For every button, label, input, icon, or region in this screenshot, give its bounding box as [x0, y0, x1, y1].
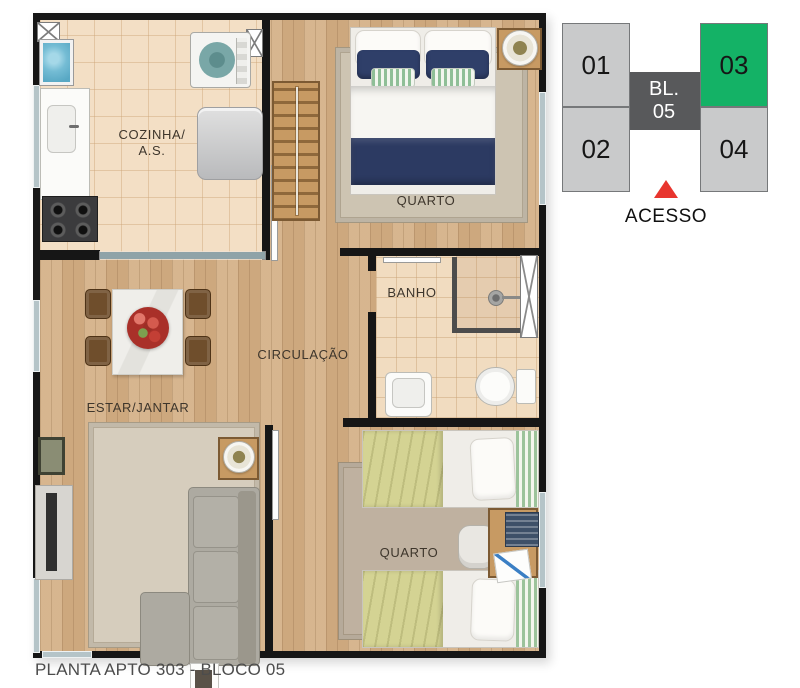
wall-bathroom-left-upper [368, 253, 376, 271]
room-label-circulation: CIRCULAÇÃO [257, 347, 348, 363]
bed-head-cover [516, 431, 538, 507]
unit-04-box: 04 [700, 107, 768, 192]
wardrobe [272, 81, 320, 221]
window-bedroom-top-right [539, 92, 546, 205]
unit-01-box: 01 [562, 23, 630, 107]
bathroom-window [520, 255, 538, 338]
room-label-bathroom: BANHO [387, 285, 436, 301]
window-living-left-lower [33, 578, 40, 653]
laptop [505, 512, 539, 547]
apartment-floorplan: COZINHA/ A.S. QUARTO BANHO CIRCULAÇÃO ES… [33, 13, 546, 658]
tv [46, 493, 57, 571]
dining-chair [85, 289, 111, 319]
bed-pillow [470, 578, 516, 641]
room-label-living: ESTAR/JANTAR [87, 400, 190, 416]
shower-arm [502, 296, 520, 299]
block-label-line2: 05 [653, 101, 675, 124]
kitchen-sink-basin [47, 105, 76, 153]
kitchen-faucet [69, 125, 79, 128]
flower-centerpiece [127, 307, 169, 349]
bed-head-cover [516, 571, 538, 647]
access-label: ACESSO [606, 206, 726, 228]
single-bed [362, 570, 539, 648]
sofa-chaise [140, 592, 190, 666]
table-lamp [223, 441, 255, 473]
room-label-bedroom-bottom: QUARTO [380, 545, 439, 561]
washing-machine [190, 32, 251, 88]
toilet-cistern [516, 369, 536, 404]
room-label-kitchen: COZINHA/ A.S. [119, 127, 186, 160]
laundry-tub [40, 40, 73, 85]
door-bedroom-bottom [272, 430, 279, 520]
bed-blanket [363, 431, 443, 507]
wall-kitchen-right [262, 20, 270, 260]
dining-chair [185, 289, 211, 319]
sofa-cushion [193, 606, 239, 660]
single-bed [362, 430, 539, 508]
sofa-cushion [193, 496, 239, 548]
shower-wall-vertical [452, 257, 457, 333]
striped-pillow [431, 68, 475, 88]
door-bathroom [383, 257, 441, 263]
window-living-left [33, 300, 40, 372]
vent-shaft-icon [37, 22, 60, 42]
window-bedroom-bottom-right [539, 492, 546, 588]
bathroom-sink-basin [392, 378, 425, 408]
refrigerator [197, 107, 263, 180]
wall-bathroom-bottom [343, 418, 539, 427]
bed-duvet [351, 86, 495, 141]
kitchen-halfwall [100, 252, 265, 259]
sofa-cushion [193, 551, 239, 603]
dining-chair [85, 336, 111, 366]
bed-runner [351, 138, 495, 185]
window-kitchen-left [33, 85, 40, 188]
notebook-paper [493, 549, 532, 584]
striped-pillow [371, 68, 415, 88]
unit-03-box-highlighted: 03 [700, 23, 768, 107]
wall-kitchen-bottom [40, 250, 100, 260]
unit-02-box: 02 [562, 107, 630, 192]
stove [42, 196, 98, 242]
wall-frame [38, 437, 65, 475]
window-living-bottom [42, 651, 92, 658]
block-05-box: BL. 05 [626, 72, 702, 130]
plan-caption: PLANTA APTO 303 - BLOCO 05 [35, 660, 285, 680]
sofa [188, 487, 260, 666]
sofa-back [238, 491, 256, 664]
room-label-bedroom-top: QUARTO [397, 193, 456, 209]
wall-bathroom-left-lower [368, 312, 376, 418]
access-arrow-icon [654, 180, 678, 198]
floorplan-page: COZINHA/ A.S. QUARTO BANHO CIRCULAÇÃO ES… [0, 0, 800, 688]
toilet [475, 367, 515, 406]
bed-blanket [363, 571, 443, 647]
block-label-line1: BL. [649, 78, 679, 101]
table-lamp [502, 30, 538, 66]
dining-chair [185, 336, 211, 366]
bed-pillow [469, 437, 516, 501]
